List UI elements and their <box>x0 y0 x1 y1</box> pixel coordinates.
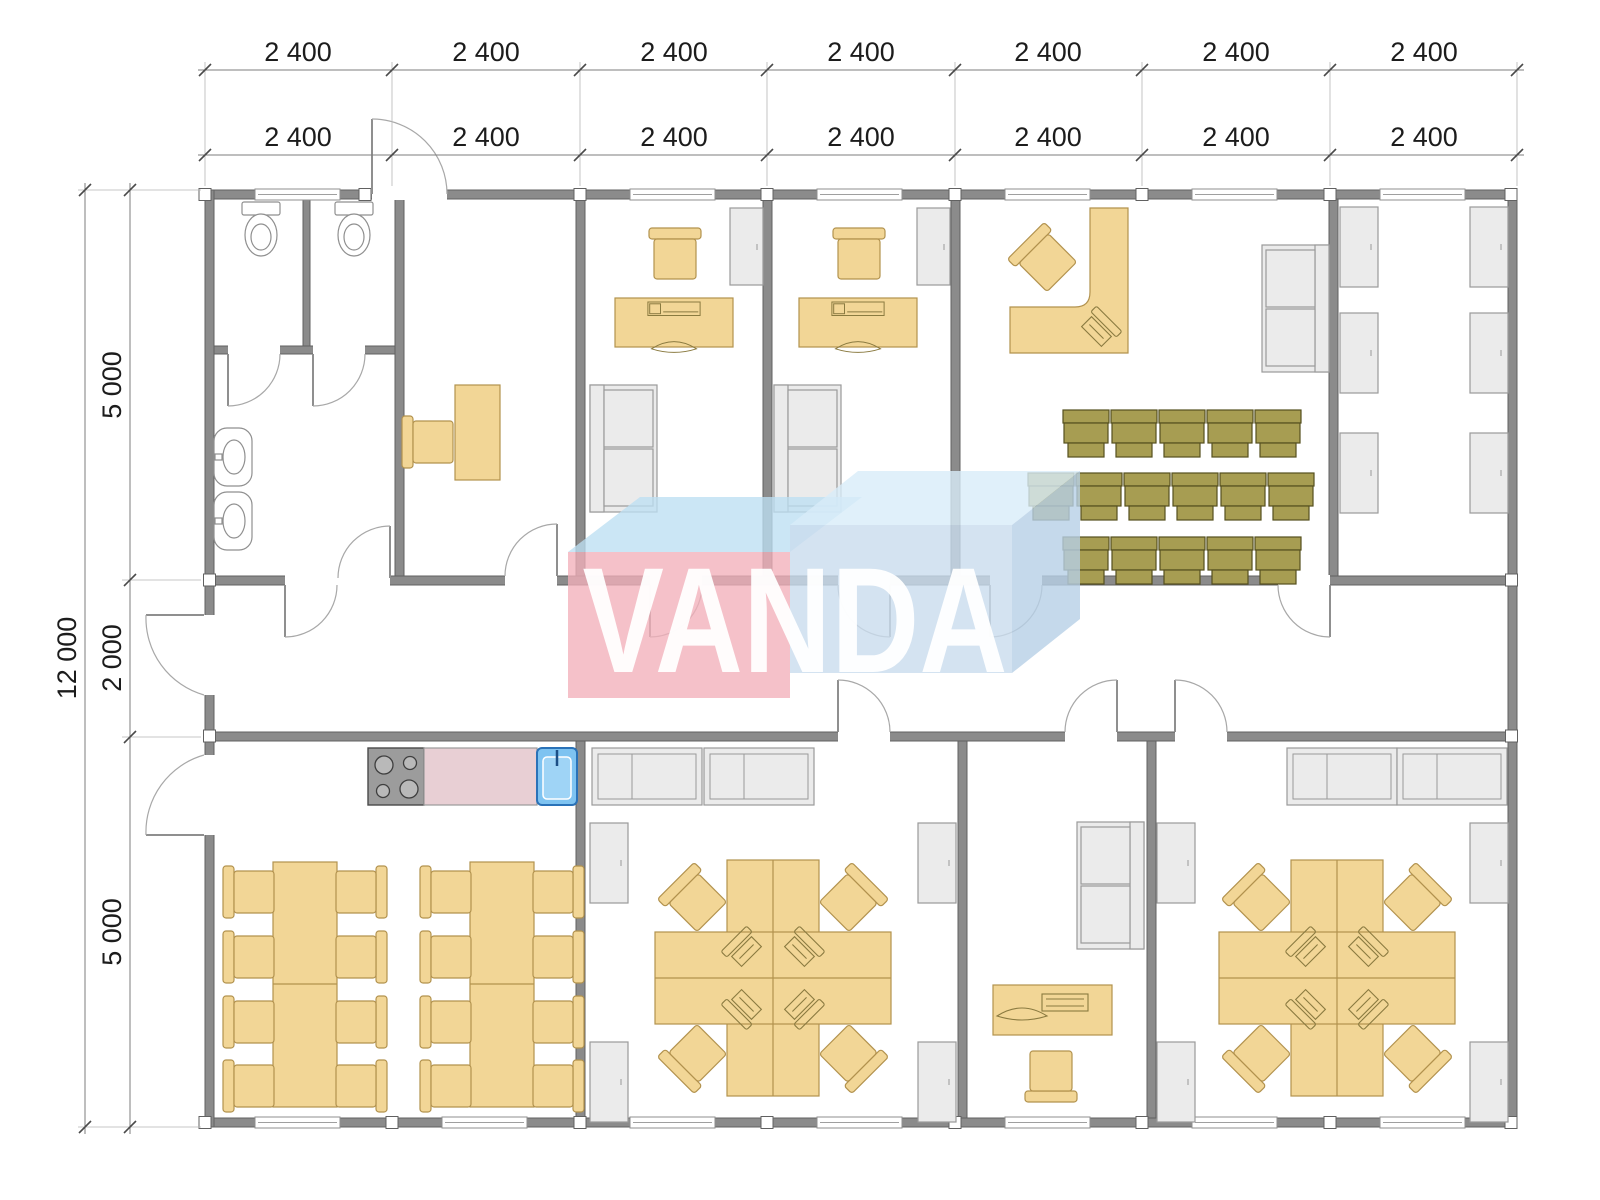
floor-plan-svg: VANDA 2 400 2 400 2 400 2 400 2 400 2 40… <box>0 0 1600 1200</box>
room-toilets <box>214 202 373 550</box>
counter <box>1287 748 1397 805</box>
desk-with-computer <box>615 298 733 352</box>
dim-label: 2 400 <box>1202 122 1270 152</box>
window <box>255 189 340 200</box>
floor-plan-page: VANDA 2 400 2 400 2 400 2 400 2 400 2 40… <box>0 0 1600 1200</box>
locker <box>1340 207 1378 287</box>
dim-label: 5 000 <box>97 351 127 419</box>
dining-table <box>470 862 534 1107</box>
desk-with-computer <box>799 298 917 352</box>
kitchen-counter <box>424 748 537 805</box>
dining-table <box>273 862 337 1107</box>
room-open-office-1 <box>590 748 956 1122</box>
desk-cluster <box>1219 860 1455 1096</box>
chair <box>1007 222 1080 295</box>
chair <box>402 416 453 468</box>
room-open-office-2 <box>1157 748 1508 1122</box>
sofa <box>590 385 657 512</box>
sink-icon <box>214 492 252 550</box>
room-office-1 <box>590 208 763 512</box>
cabinet <box>730 208 763 285</box>
dim-label: 2 400 <box>452 37 520 67</box>
chair <box>649 228 701 279</box>
counter <box>704 748 814 805</box>
dim-label-overall: 12 000 <box>52 617 82 700</box>
counter <box>1397 748 1507 805</box>
dim-label: 2 400 <box>452 122 520 152</box>
dim-label: 2 400 <box>1014 122 1082 152</box>
room-office-2 <box>774 208 950 512</box>
dim-label: 2 400 <box>1390 37 1458 67</box>
sofa <box>1077 822 1144 949</box>
reception-desk <box>455 385 500 480</box>
chair <box>1025 1051 1077 1102</box>
stove-icon <box>368 748 424 805</box>
dim-label: 2 400 <box>640 122 708 152</box>
room-lockers <box>1340 207 1508 513</box>
toilet-icon <box>335 202 373 256</box>
dim-label: 5 000 <box>97 898 127 966</box>
dim-label: 2 400 <box>1014 37 1082 67</box>
toilet-icon <box>242 202 280 256</box>
cabinet <box>917 208 950 285</box>
counter <box>592 748 702 805</box>
dim-label: 2 400 <box>827 37 895 67</box>
cabinet <box>1157 823 1195 903</box>
dim-label: 2 000 <box>97 624 127 692</box>
sofa <box>1262 245 1329 372</box>
chair <box>833 228 885 279</box>
dim-label: 2 400 <box>264 122 332 152</box>
kitchen-sink-icon <box>537 748 577 805</box>
dim-label: 2 400 <box>827 122 895 152</box>
watermark-text: VANDA <box>583 536 1008 704</box>
dim-label: 2 400 <box>264 37 332 67</box>
desk-cluster <box>655 860 891 1096</box>
room-small-office <box>993 822 1144 1102</box>
sink-icon <box>214 428 252 486</box>
dim-label: 2 400 <box>1390 122 1458 152</box>
room-canteen <box>223 748 584 1112</box>
dim-label: 2 400 <box>640 37 708 67</box>
dim-label: 2 400 <box>1202 37 1270 67</box>
room-reception <box>402 385 500 480</box>
cabinet <box>590 823 628 903</box>
vanda-watermark: VANDA <box>568 471 1080 704</box>
